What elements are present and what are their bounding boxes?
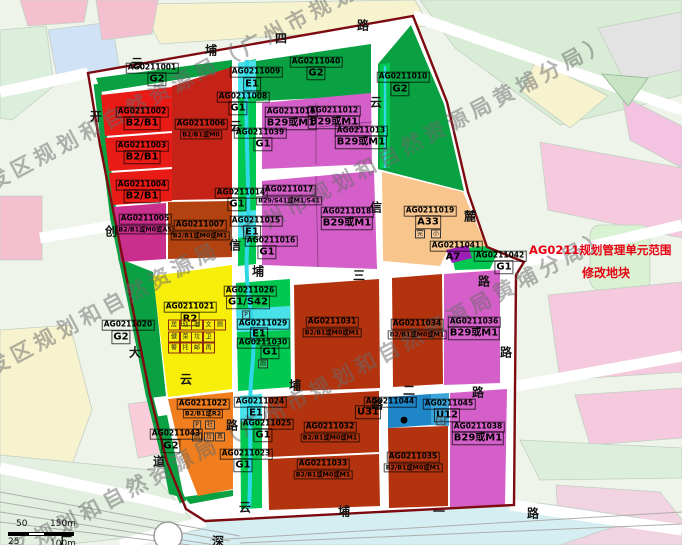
parcel-use-AG0211003: B2/B1: [124, 150, 161, 164]
facility-icon: 社: [205, 420, 215, 429]
facility-icon: 警: [168, 343, 180, 354]
parcel-code-AG0211005: AG0211005: [119, 214, 172, 225]
parcel-use-AG0211023: G1: [233, 458, 252, 472]
parcel-use-AG0211034: B2/B1或M0或M1: [388, 330, 447, 339]
road-label: 开: [90, 108, 102, 125]
facility-icon: 小: [431, 229, 441, 238]
parcel-code-AG0211007: AG0211007: [174, 220, 227, 231]
parcel-use-AG0211031: B2/B1或M0或M1: [303, 328, 362, 337]
road-label: 信: [229, 237, 241, 254]
road-label: 路: [357, 17, 369, 34]
parcel-use-AG0211009: E1: [243, 77, 261, 91]
scale-bar: 50 150m 25 100m: [4, 519, 114, 545]
road-label: 创: [105, 223, 117, 240]
parcel-use-AG0211039: G1: [253, 137, 272, 151]
parcel-code-AG0211020: AG0211020: [102, 320, 155, 331]
parcel-use-AG0211014: G1: [227, 197, 246, 211]
road-label: 埔: [338, 503, 350, 520]
planning-map: 广州开发区规划和自然资源局（广州市规划和自然资源局黄埔分局） 广州开发区规划和自…: [0, 0, 682, 545]
road-label: 一: [433, 503, 445, 520]
road-label: 埔: [252, 263, 264, 280]
facility-icon: 垃: [191, 331, 203, 342]
road-label: 埔: [205, 42, 217, 59]
parcel-use-AG0211042: G1: [494, 260, 513, 274]
scale-label: 50: [16, 519, 27, 529]
facility-icon: 幼: [180, 320, 192, 331]
road-label: 路: [500, 344, 512, 361]
road-label: 道: [153, 453, 165, 470]
road-label: 深: [212, 533, 224, 545]
parcel-use-AG0211041: A7: [445, 251, 462, 263]
parcel-use-AG0211017: B29/S41或M1/S41: [256, 196, 322, 205]
parcel-use-AG0211004: B2/B1: [124, 189, 161, 203]
parcel-code-AG0211033: AG0211033: [297, 459, 350, 470]
parcel-use-AG0211001: G2: [147, 72, 166, 86]
scale-bar-segment: [8, 532, 28, 536]
parcel-use-AG0211018: B29或M1: [321, 216, 373, 230]
parcel-use-AG0211033: B2/B1或M0或M1: [294, 470, 353, 479]
road-label: 埔: [289, 377, 301, 394]
parcel-code-AG0211009: AG0211009: [230, 67, 283, 78]
legend-modified-label: 修改地块: [582, 264, 630, 281]
parcel-use-AG0211035: B2/B1或M0或M1: [384, 463, 443, 472]
facility-icon: 卫: [203, 331, 215, 342]
parcel-code-AG0211043: AG0211043: [150, 429, 203, 440]
parcel-use-AG0211026: G1/S42: [226, 295, 270, 309]
parcel-code-AG0211031: AG0211031: [306, 317, 359, 328]
road-label: 三: [353, 267, 365, 284]
parcel-use-AG0211010: G2: [390, 82, 409, 96]
road-label: 云: [370, 94, 382, 111]
facility-icon: 厕: [258, 359, 268, 368]
parcel-use-AG0211040: G2: [306, 66, 325, 80]
parcel-code-AG0211021: AG0211021: [164, 302, 217, 313]
parcel-code-AG0211032: AG0211032: [304, 422, 357, 433]
road-label: 云: [180, 371, 192, 388]
parcel-use-AG0211007: B2/B1或M0或M1: [171, 231, 230, 240]
facility-icon: ◎: [436, 416, 445, 425]
facility-icon: 居: [168, 320, 180, 331]
road-label: 路: [226, 417, 238, 434]
facility-icon: 垃: [204, 432, 214, 441]
parcel-use-AG0211038: B29或M1: [452, 431, 504, 445]
facility-icon: 菜: [180, 331, 192, 342]
road-label: 大: [129, 344, 141, 361]
facility-icon: ●: [399, 416, 409, 427]
parcel-use-AG0211013: B29或M1: [335, 135, 387, 149]
parcel-use-AG0211008: G1: [228, 101, 247, 115]
parcel-use-AG0211032: B2/B1或M0或M1: [301, 433, 360, 442]
parcel-use-AG0211030: G1: [260, 345, 279, 359]
road-label: 云: [239, 499, 251, 516]
parcel-code-AG0211017: AG0211017: [263, 185, 316, 196]
road-label: 四: [275, 30, 287, 47]
road-label: 路: [527, 505, 539, 522]
parcel-code-AG0211006: AG0211006: [175, 119, 228, 130]
facility-icon: 健: [168, 331, 180, 342]
scale-bar-segment: [44, 532, 74, 536]
labels-layer: 云埔四路开创大道云信云信麓埔三路云埔二路路路路云埔一路广深AG0211001G2…: [0, 0, 682, 545]
parcel-use-AG0211016: G1: [257, 245, 276, 259]
parcel-code-AG0211035: AG0211035: [387, 452, 440, 463]
scale-label: 25: [8, 537, 19, 545]
facility-icon: 托: [180, 343, 192, 354]
parcel-use-AG0211005: B2/B1或M0或A5: [116, 225, 173, 234]
parcel-code-AG0211034: AG0211034: [391, 319, 444, 330]
parcel-use-AG0211020: G2: [111, 330, 130, 344]
facility-icon: 再: [203, 343, 215, 354]
parcel-use-AG0211025: G1: [253, 428, 272, 442]
scale-label: 150m: [50, 519, 76, 529]
parcel-code-AG0211010: AG0211010: [377, 72, 430, 83]
parcel-use-AG0211044: U31: [355, 405, 381, 419]
road-label: 麓: [464, 208, 476, 225]
parcel-use-AG0211019: A33: [415, 215, 441, 229]
parcel-code-AG0211022: AG0211022: [177, 399, 230, 410]
facility-icon: 老: [191, 320, 203, 331]
parcel-use-AG0211002: B2/B1: [124, 116, 161, 130]
road-label: 路: [478, 273, 490, 290]
facility-icon: 邮: [191, 343, 203, 354]
parcel-use-AG0211036: B29或M1: [448, 326, 500, 340]
facility-icon: 完: [415, 229, 425, 238]
scale-label: 100m: [50, 539, 76, 545]
parcel-use-AG0211022: B2/B1或R2: [183, 409, 223, 418]
facility-icon: 再: [215, 432, 225, 441]
legend-boundary-label: AG0211规划管理单元范围: [529, 242, 671, 258]
parcel-use-AG0211006: B2/B1或M0: [180, 130, 222, 139]
facility-icon: 文: [203, 320, 215, 331]
parcel-use-AG0211043: G2: [161, 439, 180, 453]
facility-icon: 厕: [214, 320, 226, 331]
